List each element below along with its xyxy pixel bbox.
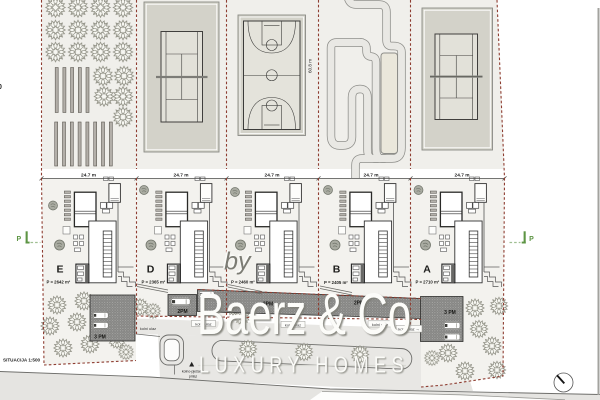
svg-text:prilaz: prilaz (189, 375, 198, 379)
svg-text:3 PM: 3 PM (444, 310, 456, 316)
svg-text:A: A (423, 264, 431, 276)
svg-text:E: E (56, 264, 63, 276)
svg-text:LUXURY HOMES: LUXURY HOMES (199, 352, 409, 378)
svg-text:P = 2365 m²: P = 2365 m² (142, 280, 166, 285)
svg-text:Baerz & Co: Baerz & Co (197, 282, 411, 347)
svg-text:24.7 m: 24.7 m (81, 173, 96, 179)
svg-text:24.7 m: 24.7 m (364, 173, 379, 179)
svg-text:P = 2710 m²: P = 2710 m² (416, 280, 440, 285)
svg-text:by: by (224, 247, 252, 275)
svg-text:P: P (16, 236, 21, 243)
svg-text:D: D (147, 264, 155, 276)
svg-text:24.7 m: 24.7 m (265, 173, 280, 179)
svg-text:P = 2642 m²: P = 2642 m² (47, 280, 71, 285)
svg-text:24.7 m: 24.7 m (455, 173, 470, 179)
svg-text:2PM: 2PM (177, 309, 187, 315)
svg-text:24.7 m: 24.7 m (174, 173, 189, 179)
svg-text:60.8 m: 60.8 m (308, 59, 313, 73)
svg-text:B: B (333, 264, 341, 276)
svg-text:SITUACIJA 1:500: SITUACIJA 1:500 (3, 358, 41, 363)
svg-text:kolni ulaz: kolni ulaz (140, 326, 156, 331)
svg-text:0: 0 (0, 84, 2, 91)
svg-text:3 PM: 3 PM (94, 335, 106, 341)
svg-text:P: P (529, 236, 534, 243)
